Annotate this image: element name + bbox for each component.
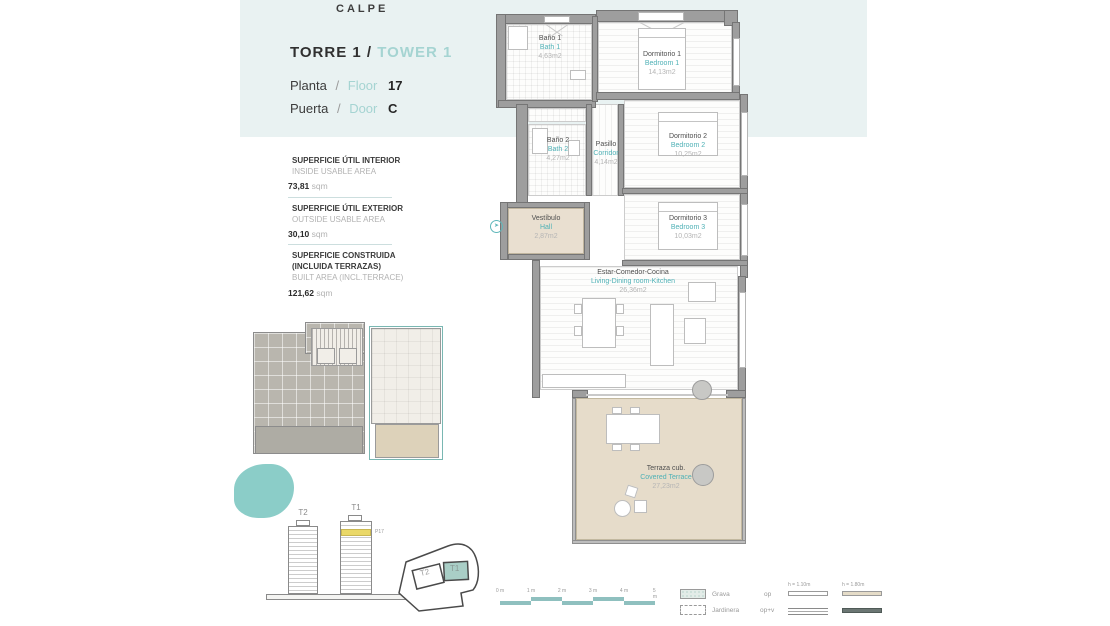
chair-icon <box>574 304 582 314</box>
site-plan: T2 T1 <box>392 540 484 616</box>
wall-segment <box>622 188 748 194</box>
room-label-bedroom1: Dormitorio 1 Bedroom 1 14,13m2 <box>643 50 681 77</box>
planter-label: Jardinera <box>712 607 739 614</box>
scale-tick: 0 m <box>496 588 504 594</box>
op-110-swatch <box>788 591 828 596</box>
divider <box>288 197 392 198</box>
terrace-parapet <box>572 540 746 544</box>
height-180-label: h = 1.80m <box>842 582 864 588</box>
scale-tick: 3 m <box>589 588 597 594</box>
sofa-icon <box>650 304 674 366</box>
wall-segment <box>500 202 588 208</box>
scale-segment <box>593 597 624 601</box>
room-name-en: Corridor <box>593 149 618 158</box>
window-glyph <box>741 204 748 256</box>
room-area: 10,25m2 <box>669 150 707 159</box>
deco-square-icon <box>634 500 647 513</box>
chair-icon <box>612 407 622 414</box>
door-value: C <box>388 101 397 116</box>
scale-tick: 4 m <box>620 588 628 594</box>
decorative-blob <box>234 464 294 518</box>
window-glyph <box>544 16 570 23</box>
tower-t2-label: T2 <box>298 508 307 517</box>
wall-segment <box>618 104 624 196</box>
door-label-es: Puerta <box>290 101 328 116</box>
kitchen-counter-icon <box>542 374 626 388</box>
area3-number: 121,62 <box>288 288 314 298</box>
room-name-en: Bedroom 2 <box>669 141 707 150</box>
area1-value: 73,81 sqm <box>288 181 328 191</box>
op-180-swatch <box>842 591 882 596</box>
chair-icon <box>612 444 622 451</box>
door-row: Puerta / Door C <box>290 101 397 116</box>
area3-value: 121,62 sqm <box>288 288 332 298</box>
wall-segment <box>596 92 740 100</box>
area1-unit: sqm <box>312 181 328 191</box>
window-glyph <box>638 12 684 21</box>
chair-icon <box>616 326 624 336</box>
room-name-en: Living-Dining room-Kitchen <box>591 277 675 286</box>
room-label-corridor: Pasillo Corridor 4,14m2 <box>593 140 618 167</box>
op-label: op <box>764 591 771 598</box>
room-area: 10,03m2 <box>669 232 707 241</box>
floor-tag-p17: P17 <box>375 529 384 535</box>
dining-table-icon <box>582 298 616 348</box>
terrace-parapet <box>742 398 746 544</box>
door-slash: / <box>332 101 346 116</box>
window-glyph <box>733 38 740 86</box>
room-area: 2,87m2 <box>532 232 561 241</box>
room-name-es: Baño 2 <box>546 136 569 145</box>
wall-segment <box>622 260 748 266</box>
room-closet <box>528 108 586 122</box>
room-name-en: Covered Terrace <box>640 473 692 482</box>
window-glyph <box>739 292 746 368</box>
room-label-bedroom2: Dormitorio 2 Bedroom 2 10,25m2 <box>669 132 707 159</box>
chair-icon <box>616 304 624 314</box>
opv-180-swatch <box>842 608 882 613</box>
room-label-hall: Vestíbulo Hall 2,87m2 <box>532 214 561 241</box>
side-table-icon <box>688 282 716 302</box>
wall-segment <box>508 254 590 260</box>
room-label-bath1: Baño 1 Bath 1 4,63m2 <box>538 34 561 61</box>
scale-segment <box>624 601 655 605</box>
area3-title-en: BUILT AREA (INCL.TERRACE) <box>292 272 403 283</box>
room-area: 4,14m2 <box>593 158 618 167</box>
terrace-table-icon <box>606 414 660 444</box>
opv-label: op+v <box>760 607 774 614</box>
room-label-bedroom3: Dormitorio 3 Bedroom 3 10,03m2 <box>669 214 707 241</box>
room-name-en: Bath 2 <box>546 145 569 154</box>
scale-tick: 2 m <box>558 588 566 594</box>
area3-unit: sqm <box>316 288 332 298</box>
chair-icon <box>574 326 582 336</box>
wall-segment <box>584 202 590 260</box>
apartment-floorplan: ➤ Baño 1 Bath 1 4,63m2 Dormitorio 1 Bedr… <box>488 8 780 548</box>
area2-title-en: OUTSIDE USABLE AREA <box>292 214 385 225</box>
room-name-es: Vestíbulo <box>532 214 561 223</box>
window-glyph <box>741 112 748 176</box>
room-name-es: Dormitorio 1 <box>643 50 681 59</box>
opv-110-swatch <box>788 608 828 615</box>
toilet-icon <box>568 140 580 156</box>
floor-slash: / <box>331 78 345 93</box>
height-110-label: h = 1.10m <box>788 582 810 588</box>
floor-label-es: Planta <box>290 78 327 93</box>
room-name-en: Bedroom 1 <box>643 59 681 68</box>
wall-segment <box>516 104 528 206</box>
wall-segment <box>496 14 506 108</box>
chair-icon <box>630 444 640 451</box>
door-label-en: Door <box>349 101 377 116</box>
location-title: CALPE <box>336 3 388 15</box>
room-label-terrace: Terraza cub. Covered Terrace 27,23m2 <box>640 464 692 491</box>
area1-title-es: SUPERFICIE ÚTIL INTERIOR <box>292 155 400 166</box>
entrance-arrow-icon: ➤ <box>490 220 503 233</box>
area2-unit: sqm <box>312 229 328 239</box>
area1-title-en: INSIDE USABLE AREA <box>292 166 376 177</box>
tower-title-slash: / <box>367 44 372 61</box>
area2-number: 30,10 <box>288 229 309 239</box>
room-name-en: Bedroom 3 <box>669 223 707 232</box>
scale-tick: 1 m <box>527 588 535 594</box>
room-name-es: Baño 1 <box>538 34 561 43</box>
wall-segment <box>532 260 540 398</box>
legend: Grava Jardinera op op+v h = 1.10m h = 1.… <box>680 588 900 620</box>
planter-icon <box>692 464 714 486</box>
gravel-swatch <box>680 589 706 599</box>
shower-icon <box>508 26 528 50</box>
room-area: 4,63m2 <box>538 52 561 61</box>
elevator <box>339 348 357 364</box>
floor-row: Planta / Floor 17 <box>290 78 402 93</box>
area3-title-es2: (INCLUIDA TERRAZAS) <box>292 261 381 272</box>
site-t1-label: T1 <box>450 564 459 573</box>
tower-t2-elevation <box>288 526 318 594</box>
room-area: 14,13m2 <box>643 68 681 77</box>
area3-title-es: SUPERFICIE CONSTRUIDA <box>292 250 396 261</box>
room-name-en: Bath 1 <box>538 43 561 52</box>
key-plan <box>253 322 445 462</box>
room-label-bath2: Baño 2 Bath 2 4,27m2 <box>546 136 569 163</box>
tower-t1-label: T1 <box>351 503 360 512</box>
floor-value: 17 <box>388 78 402 93</box>
highlighted-unit-outline <box>369 326 443 460</box>
area1-number: 73,81 <box>288 181 309 191</box>
area2-title-es: SUPERFICIE ÚTIL EXTERIOR <box>292 203 403 214</box>
scale-bar: 0 m 1 m 2 m 3 m 4 m 5 m <box>498 588 658 608</box>
highlighted-floor-17 <box>341 529 371 536</box>
scale-segment <box>562 601 593 605</box>
key-plan-terrace-gray <box>255 426 363 454</box>
tower-title: TORRE 1 / TOWER 1 <box>290 44 452 61</box>
room-area: 26,36m2 <box>591 286 675 295</box>
wall-segment <box>592 16 598 102</box>
room-name-es: Estar-Comedor-Cocina <box>591 268 675 277</box>
room-name-en: Hall <box>532 223 561 232</box>
room-area: 4,27m2 <box>546 154 569 163</box>
room-label-living: Estar-Comedor-Cocina Living-Dining room-… <box>591 268 675 295</box>
room-name-es: Dormitorio 3 <box>669 214 707 223</box>
tower-title-es: TORRE 1 <box>290 44 362 61</box>
wall-segment <box>498 100 596 108</box>
deco-round-icon <box>614 500 631 517</box>
armchair-icon <box>684 318 706 344</box>
tower-title-en: TOWER 1 <box>377 44 452 61</box>
wall-segment <box>586 104 592 196</box>
gravel-label: Grava <box>712 591 730 598</box>
chair-icon <box>630 407 640 414</box>
wall-segment <box>726 390 746 398</box>
area2-value: 30,10 sqm <box>288 229 328 239</box>
room-area: 27,23m2 <box>640 482 692 491</box>
floor-label-en: Floor <box>348 78 378 93</box>
room-name-es: Pasillo <box>593 140 618 149</box>
divider <box>288 244 392 245</box>
elevator <box>317 348 335 364</box>
room-name-es: Dormitorio 2 <box>669 132 707 141</box>
terrace-parapet <box>572 398 576 544</box>
planter-icon <box>692 380 712 400</box>
scale-tick: 5 m <box>653 588 657 600</box>
scale-segment <box>500 601 531 605</box>
planter-swatch <box>680 605 706 615</box>
scale-segment <box>531 597 562 601</box>
floorplan-page: CALPE TORRE 1 / TOWER 1 Planta / Floor 1… <box>0 0 1110 626</box>
sink-icon <box>570 70 586 80</box>
site-outline <box>392 540 484 616</box>
room-name-es: Terraza cub. <box>640 464 692 473</box>
